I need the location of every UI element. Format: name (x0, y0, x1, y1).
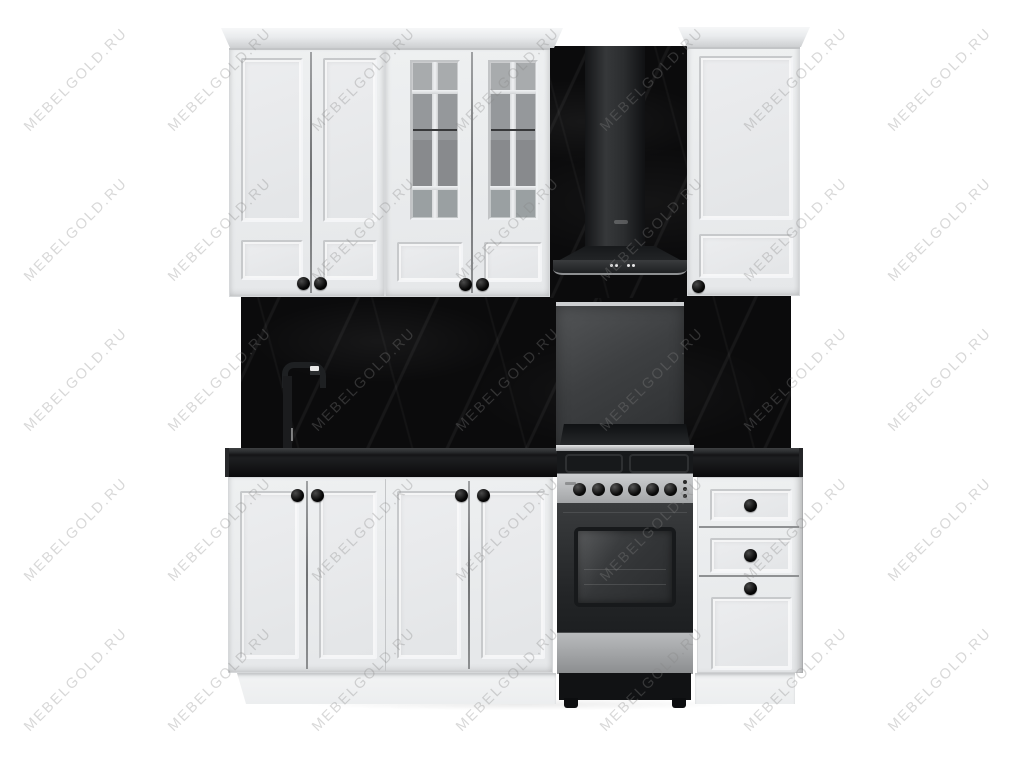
watermark-text: MEBELGOLD.RU (885, 325, 995, 435)
door-knob (455, 489, 468, 502)
watermark-text: MEBELGOLD.RU (21, 475, 131, 585)
burner-grate (629, 454, 689, 473)
stove-knob (628, 483, 641, 496)
faucet-reflection (291, 428, 293, 441)
door-panel (397, 242, 463, 282)
watermark-text: MEBELGOLD.RU (21, 325, 131, 435)
door-panel (699, 234, 793, 278)
glass-mullion (412, 186, 458, 190)
oven-window-sheen (578, 531, 672, 603)
stove-knob (573, 483, 586, 496)
door-knob (476, 278, 489, 291)
hood-logo (614, 220, 628, 224)
watermark-text: MEBELGOLD.RU (885, 625, 995, 735)
drawer-seam (699, 526, 799, 528)
countertop (225, 448, 803, 477)
door-knob (297, 277, 310, 290)
crown-molding-left (221, 28, 563, 48)
door-panel (241, 58, 303, 222)
glass-mullion (490, 90, 536, 94)
stove-foot (672, 698, 686, 708)
door-panel (481, 491, 545, 659)
igniter-dot (683, 480, 687, 484)
drawer-panel (711, 597, 792, 670)
watermark-text: MEBELGOLD.RU (885, 475, 995, 585)
drawer-knob (744, 549, 757, 562)
faucet (282, 360, 322, 455)
countertop-right-edge (799, 448, 803, 477)
stove-foot (564, 698, 578, 708)
door-panel (699, 56, 793, 220)
door-panel (484, 242, 542, 282)
door-panel (240, 491, 299, 659)
stove-knob (646, 483, 659, 496)
watermark-text: MEBELGOLD.RU (21, 625, 131, 735)
drawer-seam (699, 575, 799, 577)
burner-grate (565, 454, 623, 473)
door-knob (477, 489, 490, 502)
glass-mullion (510, 62, 516, 218)
watermark-text: MEBELGOLD.RU (21, 175, 131, 285)
glass-mullion (412, 90, 458, 94)
glass-mullion (432, 62, 438, 218)
stove (556, 424, 694, 710)
hood-button-dot (632, 264, 635, 267)
range-hood-chimney (585, 46, 645, 248)
door-panel (319, 491, 377, 659)
plinth-left (237, 673, 556, 704)
glass-shelf-line (413, 129, 457, 131)
oven-door-trim (563, 512, 687, 513)
stove-knob (610, 483, 623, 496)
hood-button-dot (615, 264, 618, 267)
watermark-text: MEBELGOLD.RU (885, 25, 995, 135)
door-gap (306, 481, 308, 669)
hood-button-dot (627, 264, 630, 267)
oven-window (574, 527, 676, 607)
crown-molding-shadow (229, 48, 550, 50)
door-gap (471, 52, 473, 293)
oven-door (557, 503, 693, 632)
drawer-knob (744, 582, 757, 595)
door-knob (314, 277, 327, 290)
glass-mullion (490, 186, 536, 190)
door-panel (323, 58, 377, 222)
glass-door-panes (410, 60, 460, 220)
door-gap (468, 481, 470, 669)
hood-button-dot (610, 264, 613, 267)
storage-drawer (557, 632, 693, 674)
door-knob (692, 280, 705, 293)
door-knob (291, 489, 304, 502)
faucet-spout-tip (310, 371, 320, 375)
door-knob (311, 489, 324, 502)
cooktop (557, 451, 693, 473)
cabinet-joint (385, 479, 386, 671)
countertop-left-edge (225, 448, 229, 477)
stove-control-panel (557, 473, 693, 505)
igniter-dot (683, 494, 687, 498)
plinth-right (695, 673, 795, 704)
product-image: MEBELGOLD.RUMEBELGOLD.RUMEBELGOLD.RUMEBE… (0, 0, 1024, 768)
door-knob (459, 278, 472, 291)
igniter-dot (683, 487, 687, 491)
watermark-text: MEBELGOLD.RU (885, 175, 995, 285)
door-gap (310, 52, 312, 293)
glass-shelf-line (491, 129, 535, 131)
door-panel (241, 240, 303, 280)
stove-knob (664, 483, 677, 496)
stove-base (559, 673, 691, 700)
crown-molding-shadow (687, 47, 800, 49)
glass-door-panes (488, 60, 538, 220)
door-panel (323, 240, 377, 280)
door-panel (397, 491, 461, 659)
drawer-knob (744, 499, 757, 512)
crown-molding-right (678, 27, 810, 47)
stove-lid (560, 424, 690, 445)
watermark-text: MEBELGOLD.RU (21, 25, 131, 135)
stove-knob (592, 483, 605, 496)
hood-glass-visor (553, 260, 687, 275)
